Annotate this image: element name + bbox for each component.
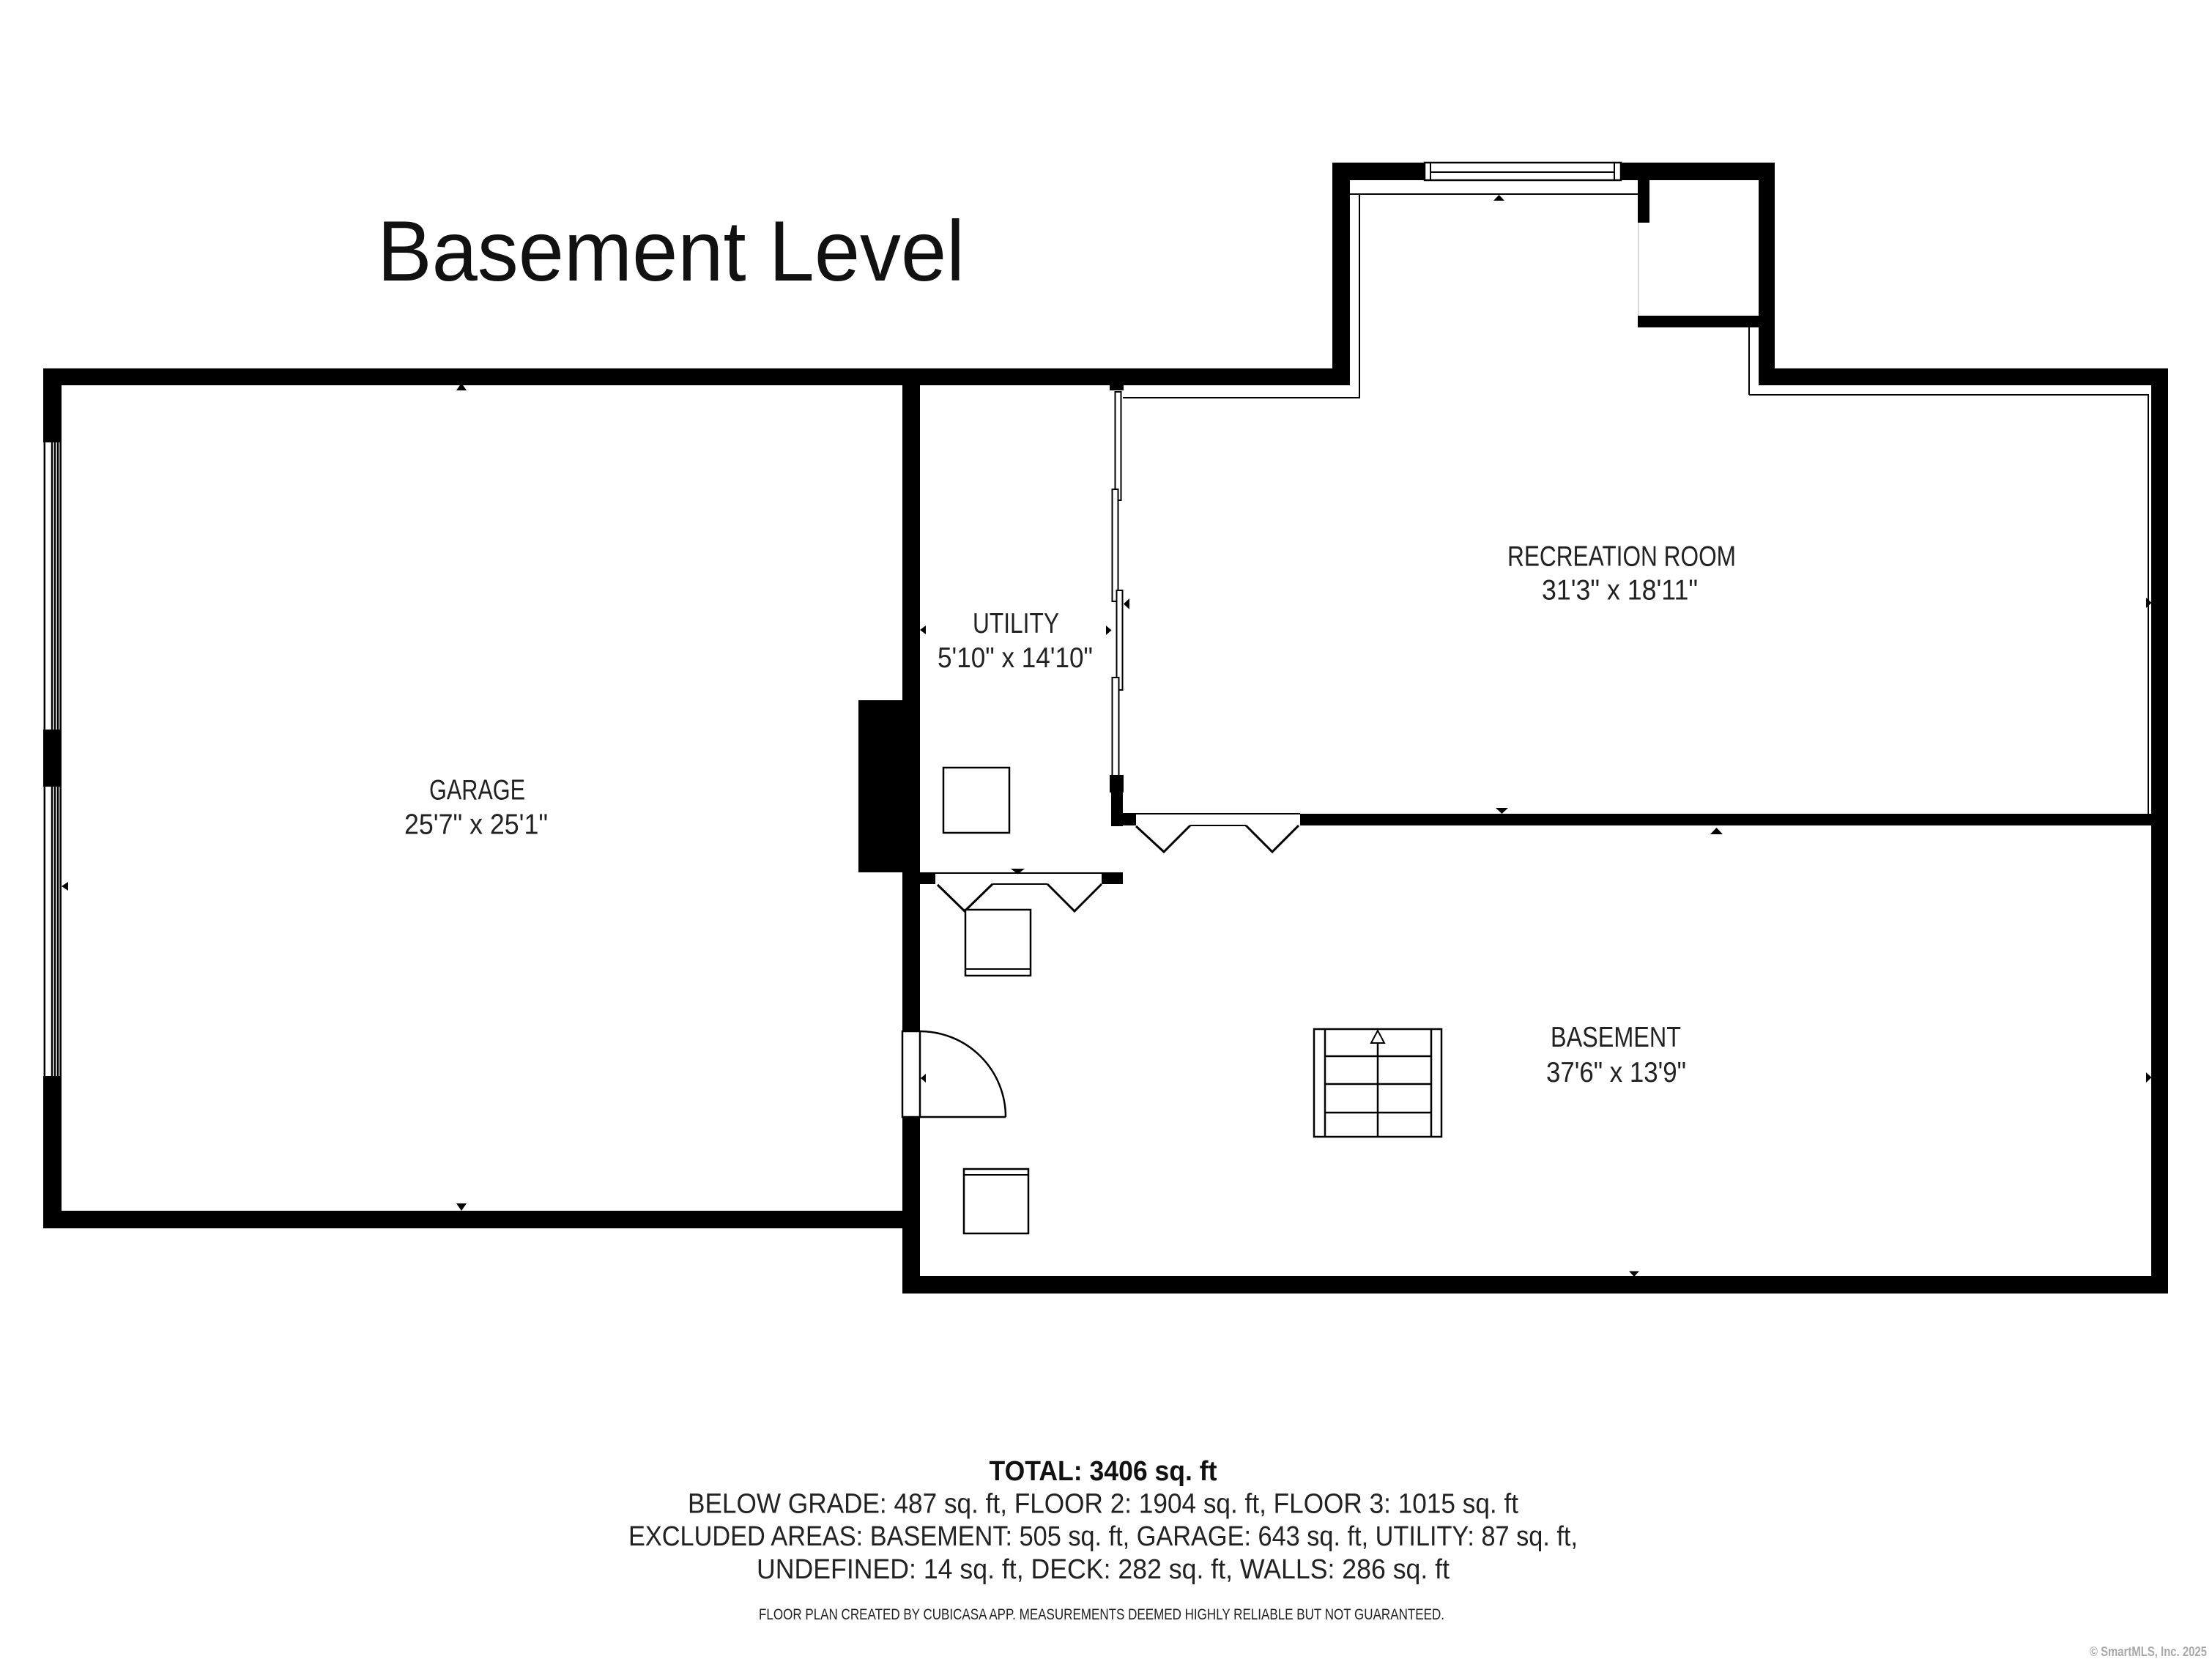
svg-text:37'6" x 13'9": 37'6" x 13'9" bbox=[1546, 1057, 1686, 1088]
svg-text:TOTAL: 3406 sq. ft: TOTAL: 3406 sq. ft bbox=[990, 1456, 1217, 1487]
svg-text:EXCLUDED AREAS: BASEMENT: 505: EXCLUDED AREAS: BASEMENT: 505 sq. ft, GA… bbox=[628, 1521, 1578, 1552]
svg-text:5'10" x 14'10": 5'10" x 14'10" bbox=[938, 642, 1093, 674]
svg-text:GARAGE: GARAGE bbox=[429, 775, 525, 806]
svg-text:UNDEFINED: 14 sq. ft, DECK: 28: UNDEFINED: 14 sq. ft, DECK: 282 sq. ft, … bbox=[757, 1554, 1450, 1585]
svg-text:© SmartMLS, Inc. 2025: © SmartMLS, Inc. 2025 bbox=[2090, 1644, 2207, 1659]
svg-text:31'3" x 18'11": 31'3" x 18'11" bbox=[1542, 575, 1698, 606]
svg-text:RECREATION ROOM: RECREATION ROOM bbox=[1507, 541, 1736, 573]
svg-text:FLOOR PLAN CREATED BY CUBICASA: FLOOR PLAN CREATED BY CUBICASA APP. MEAS… bbox=[759, 1606, 1444, 1623]
svg-text:UTILITY: UTILITY bbox=[973, 608, 1059, 639]
svg-text:Basement Level: Basement Level bbox=[377, 203, 965, 299]
svg-text:BELOW GRADE: 487 sq. ft, FLOOR: BELOW GRADE: 487 sq. ft, FLOOR 2: 1904 s… bbox=[688, 1489, 1518, 1520]
svg-text:BASEMENT: BASEMENT bbox=[1551, 1022, 1681, 1053]
svg-text:25'7" x 25'1": 25'7" x 25'1" bbox=[404, 809, 548, 841]
